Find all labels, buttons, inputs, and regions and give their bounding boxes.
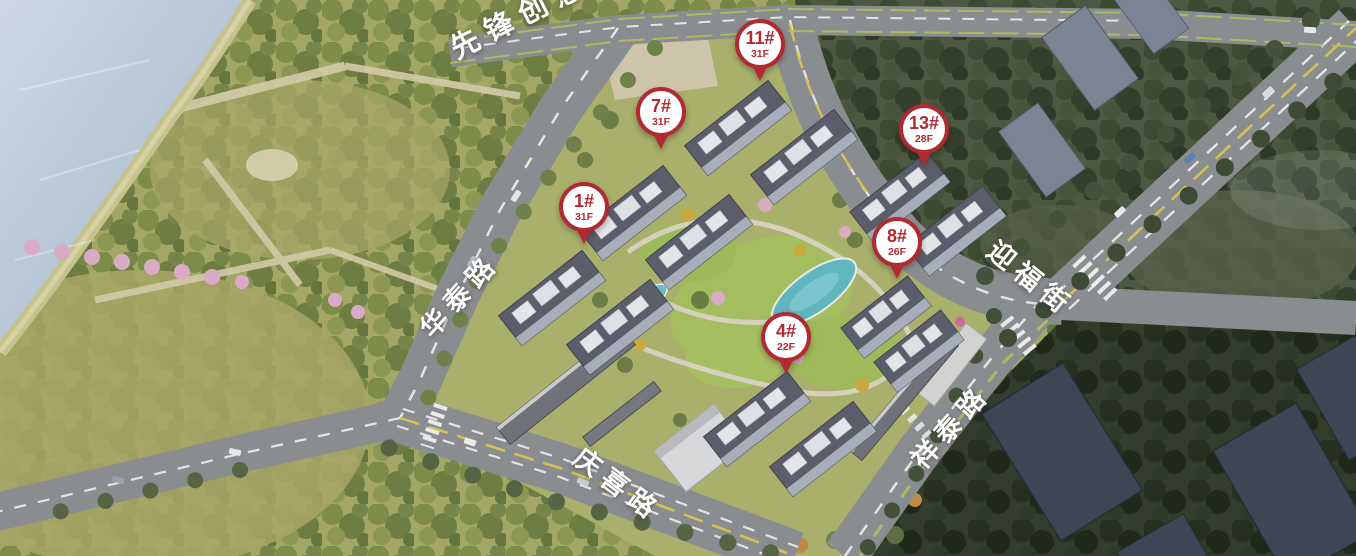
- marker-circle: 13# 28F: [899, 104, 949, 154]
- building-number-label: 7#: [651, 97, 671, 115]
- marker-circle: 1# 31F: [559, 182, 609, 232]
- building-number-label: 8#: [887, 227, 907, 245]
- floor-count-label: 22F: [777, 342, 795, 353]
- floor-count-label: 28F: [915, 134, 933, 145]
- building-marker-8[interactable]: 8# 26F: [867, 217, 927, 279]
- marker-pointer-icon: [653, 133, 669, 149]
- marker-circle: 7# 31F: [636, 87, 686, 137]
- building-number-label: 13#: [909, 114, 939, 132]
- building-marker-4[interactable]: 4# 22F: [756, 312, 816, 374]
- building-marker-1[interactable]: 1# 31F: [554, 182, 614, 244]
- marker-pointer-icon: [889, 263, 905, 279]
- marker-pointer-icon: [752, 65, 768, 81]
- marker-circle: 8# 26F: [872, 217, 922, 267]
- aerial-masterplan-view: 先锋创意 华泰路 庆喜路 祥泰路 迎福街 1# 31F 4# 22F 7# 31…: [0, 0, 1356, 556]
- marker-circle: 4# 22F: [761, 312, 811, 362]
- building-number-label: 1#: [574, 192, 594, 210]
- site-aerial-rendering: [0, 0, 1356, 556]
- building-marker-7[interactable]: 7# 31F: [631, 87, 691, 149]
- marker-circle: 11# 31F: [735, 19, 785, 69]
- floor-count-label: 31F: [575, 212, 593, 223]
- floor-count-label: 31F: [751, 49, 769, 60]
- building-marker-11[interactable]: 11# 31F: [730, 19, 790, 81]
- marker-pointer-icon: [916, 150, 932, 166]
- building-marker-13[interactable]: 13# 28F: [894, 104, 954, 166]
- marker-pointer-icon: [576, 228, 592, 244]
- building-number-label: 4#: [776, 322, 796, 340]
- floor-count-label: 26F: [888, 247, 906, 258]
- marker-pointer-icon: [778, 358, 794, 374]
- building-number-label: 11#: [745, 29, 774, 47]
- floor-count-label: 31F: [652, 117, 670, 128]
